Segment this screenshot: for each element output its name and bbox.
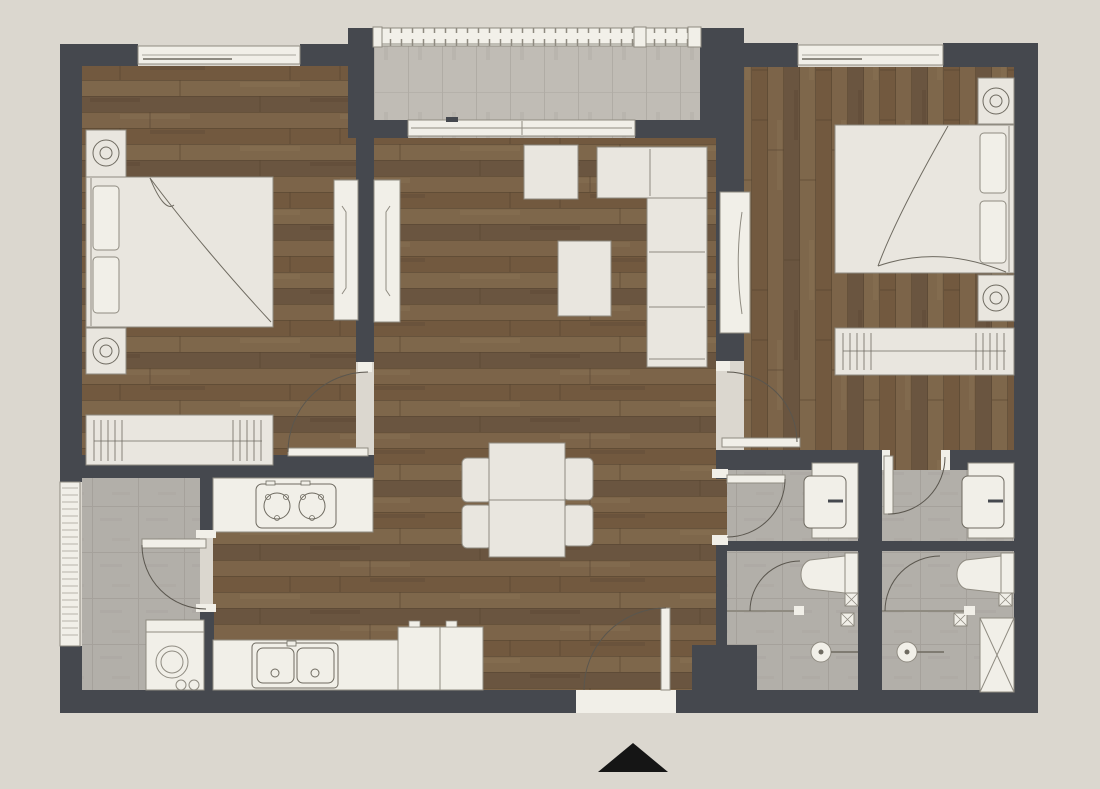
bathroom1-door-jamb-b	[712, 535, 728, 545]
cabinet-handle-1	[409, 621, 420, 627]
kitchen-cabinet-1	[398, 627, 440, 690]
toilet1-bowl	[801, 556, 845, 593]
entrance-marker-triangle	[598, 743, 668, 772]
living-wardrobe	[374, 180, 400, 322]
shower2-glass-cap	[964, 606, 975, 615]
side-table	[558, 241, 611, 316]
bathroom1-halfwall	[727, 541, 858, 551]
top-wall-bed1-left	[60, 44, 138, 66]
bathroom1-door-jamb-a	[712, 469, 728, 478]
railing-post-right	[688, 27, 701, 47]
bottom-wall-right	[672, 690, 1038, 713]
bedroom2-door-cap	[716, 361, 730, 371]
entrance-wall-block	[692, 645, 757, 690]
utility-door-jamb-a	[196, 530, 216, 538]
shower1-drain-dot	[819, 650, 824, 655]
coffee-table	[524, 145, 578, 199]
sink-unit	[252, 643, 338, 688]
bottom-wall-left	[60, 690, 583, 713]
top-wall-bed2-left	[712, 43, 798, 67]
railing-post-mid	[634, 27, 646, 47]
left-wall-upper	[60, 44, 82, 482]
toilet1-tank	[845, 553, 858, 593]
shower2-drain-dot	[905, 650, 910, 655]
right-wall	[1014, 43, 1038, 713]
balcony-bottom-wall-right	[635, 120, 700, 138]
cabinet-handle-2	[446, 621, 457, 627]
bedroom1-nightstand-top	[86, 130, 126, 177]
bed2-pillow-b	[980, 201, 1006, 263]
bathroom1-doorway-floor	[716, 479, 727, 537]
sofa-top	[597, 147, 707, 198]
bedroom2-door-leaf	[722, 438, 800, 447]
shower1-glass-cap	[794, 606, 804, 615]
sliding-door-handle	[446, 117, 458, 122]
entrance-door-leaf	[661, 608, 670, 690]
bathroom2-door-jamb-b	[941, 450, 950, 470]
entrance-threshold	[576, 690, 676, 713]
utility-door-jamb-b	[196, 604, 216, 612]
sink-tap	[287, 641, 296, 646]
bedroom1-door-cap	[358, 362, 372, 372]
balcony-railing	[374, 28, 700, 46]
bathroom2-door-leaf	[884, 456, 893, 514]
bed2-pillow-a	[980, 133, 1006, 193]
hob-tick-2	[301, 481, 310, 485]
bedroom2-wardrobe	[720, 192, 750, 333]
kitchen-cabinet-2	[440, 627, 483, 690]
bedroom1-door-leaf	[288, 448, 368, 456]
bathroom2-halfwall	[882, 541, 1014, 551]
toilet2-tank	[1001, 553, 1014, 593]
hob-tick-1	[266, 481, 275, 485]
washer-knob-2	[189, 680, 199, 690]
plan-svg	[0, 0, 1100, 789]
kitchen-hob-counter	[213, 478, 373, 532]
bed1-pillow-b	[93, 257, 119, 313]
washer-knob-1	[176, 680, 186, 690]
bathroom1-door-leaf	[727, 475, 785, 483]
balcony-left-wall	[348, 28, 374, 138]
bedroom1-dresser	[86, 415, 273, 465]
dining-chair-3	[563, 458, 593, 500]
floor-plan-page	[0, 0, 1100, 789]
bedroom2-dresser	[835, 328, 1014, 375]
dining-chair-4	[563, 505, 593, 546]
washing-machine	[146, 620, 204, 690]
dining-chair-2	[462, 505, 492, 548]
railing-post-left	[373, 27, 382, 47]
bedroom1-living-wall	[356, 136, 374, 362]
utility-door-leaf	[142, 539, 206, 548]
utility-wall-upper	[200, 478, 214, 536]
dining-chair-1	[462, 458, 492, 502]
bathrooms-divider-wall	[858, 450, 882, 690]
bed1-pillow-a	[93, 186, 119, 250]
toilet2-bowl	[957, 556, 1001, 593]
balcony-bottom-wall-left	[374, 120, 408, 138]
sofa-side	[647, 198, 707, 367]
bedroom1-nightstand-bottom	[86, 328, 126, 374]
